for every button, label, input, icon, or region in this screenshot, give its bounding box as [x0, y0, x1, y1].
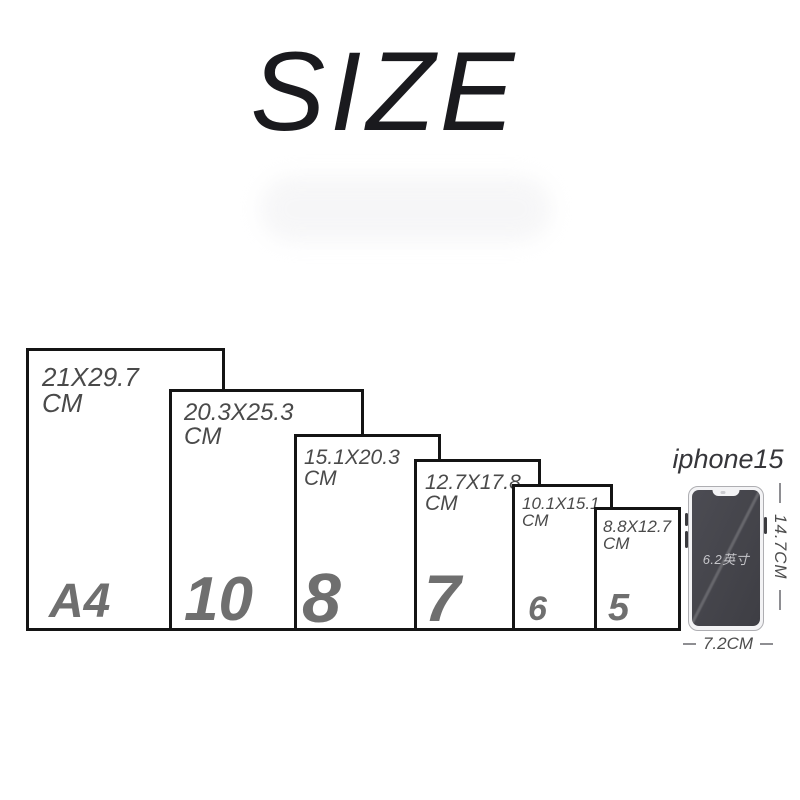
- volume-button-down: [685, 531, 688, 548]
- dimension-tick: [779, 483, 781, 503]
- volume-button-up: [685, 513, 688, 526]
- phone-notch: [713, 489, 740, 496]
- dimension-tick: [779, 590, 781, 610]
- paper-size-name: A4: [49, 584, 110, 620]
- paper-dimensions: 8.8X12.7 CM: [597, 510, 678, 552]
- screen-size-label: 6.2英寸: [703, 549, 750, 568]
- title-shadow: [260, 176, 552, 242]
- iphone-illustration: 6.2英寸: [688, 486, 764, 631]
- paper-size-name: 8: [302, 572, 341, 625]
- paper-size-name: 5: [608, 594, 629, 623]
- paper-rect-5: 8.8X12.7 CM 5: [594, 507, 681, 631]
- phone-width-dimension: 7.2CM: [680, 634, 776, 654]
- power-button: [764, 517, 767, 534]
- phone-screen: 6.2英寸: [692, 490, 760, 626]
- paper-size-name: 10: [184, 577, 253, 624]
- dimension-tick: [683, 643, 696, 645]
- phone-height-dimension: 14.7CM: [768, 483, 792, 610]
- size-comparison-infographic: SIZE 21X29.7 CM A4 20.3X25.3 CM 10 15.1X…: [0, 0, 800, 800]
- paper-size-name: 7: [424, 574, 461, 624]
- phone-height-label: 14.7CM: [770, 514, 790, 580]
- iphone-label: iphone15: [666, 444, 790, 475]
- page-title: SIZE: [238, 36, 532, 148]
- paper-size-name: 6: [528, 597, 547, 623]
- dimension-tick: [760, 643, 773, 645]
- phone-width-label: 7.2CM: [703, 634, 753, 654]
- camera-icon: [721, 491, 726, 494]
